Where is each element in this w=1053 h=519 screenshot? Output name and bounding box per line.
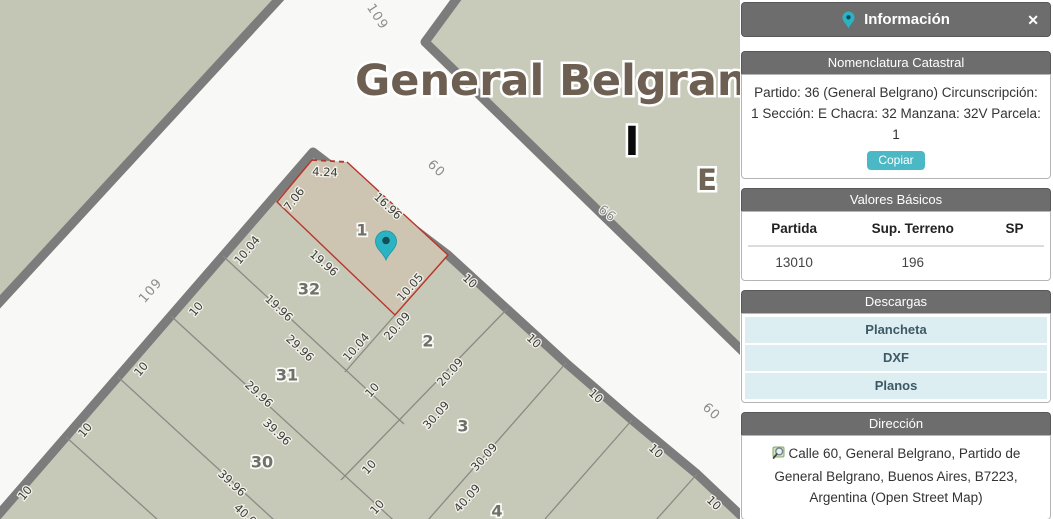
close-icon[interactable]: ✕ [1027, 13, 1039, 27]
copy-button[interactable]: Copiar [867, 151, 924, 170]
panel-header: Información ✕ [741, 2, 1051, 37]
col-sup-terreno: Sup. Terreno [844, 221, 981, 236]
download-dxf[interactable]: DXF [745, 345, 1047, 371]
parcel-number-1: 1 [356, 221, 367, 240]
address-text: Calle 60, General Belgrano, Partido de G… [774, 446, 1020, 505]
section-label-e: E [697, 163, 717, 197]
section-header-direccion: Dirección [741, 412, 1051, 435]
download-planos[interactable]: Planos [745, 373, 1047, 399]
section-nomenclatura: Nomenclatura Catastral Partido: 36 (Gene… [741, 51, 1051, 179]
parcel-number-31: 31 [276, 366, 298, 385]
address-text-wrap: Calle 60, General Belgrano, Partido de G… [750, 444, 1042, 509]
nomenclatura-text: Partido: 36 (General Belgrano) Circunscr… [750, 83, 1042, 146]
section-label-i: I [625, 119, 640, 165]
map-pin-icon [842, 11, 855, 29]
parcel-number-32: 32 [298, 280, 320, 299]
panel-title: Información [864, 11, 950, 28]
info-panel: Información ✕ Nomenclatura Catastral Par… [740, 0, 1053, 519]
download-plancheta[interactable]: Plancheta [745, 317, 1047, 343]
map-search-icon [772, 446, 786, 467]
parcel-number-2: 2 [422, 332, 433, 351]
value-sup-terreno: 196 [844, 255, 981, 270]
parcel-number-3: 3 [457, 417, 468, 436]
valores-table-header: Partida Sup. Terreno SP [744, 216, 1048, 245]
parcel-number-30: 30 [251, 453, 273, 472]
col-sp: SP [981, 221, 1048, 236]
dimension-label-4.24: 4.24 [312, 164, 338, 179]
section-header-valores: Valores Básicos [741, 188, 1051, 211]
value-partida: 13010 [744, 255, 844, 270]
valores-table-row: 13010 196 [744, 247, 1048, 274]
section-descargas: Descargas Plancheta DXF Planos [741, 290, 1051, 403]
col-partida: Partida [744, 221, 844, 236]
parcel-number-4: 4 [491, 502, 502, 519]
place-label: General Belgrano [355, 56, 777, 106]
section-header-nomenclatura: Nomenclatura Catastral [741, 51, 1051, 74]
section-header-descargas: Descargas [741, 290, 1051, 313]
section-valores: Valores Básicos Partida Sup. Terreno SP … [741, 188, 1051, 281]
section-direccion: Dirección Calle 60, General Belgrano, Pa… [741, 412, 1051, 519]
cadastral-map-app: General Belgrano 109606610960 4.247.0616… [0, 0, 1053, 519]
